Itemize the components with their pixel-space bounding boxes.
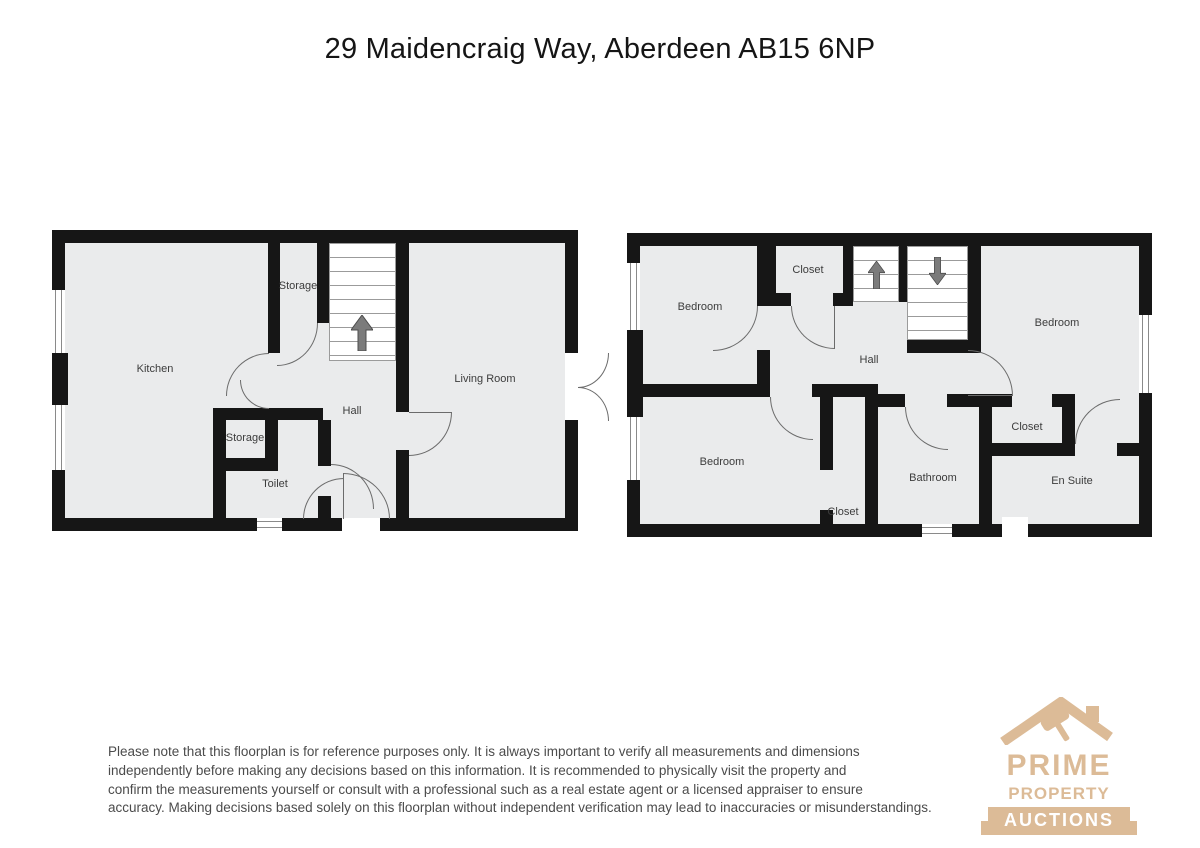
wall-segment: [865, 407, 878, 524]
stairs-up-arrow-icon: [351, 315, 373, 356]
stairs-down-arrow-icon: [929, 252, 946, 285]
logo-word-property: PROPERTY: [988, 785, 1130, 802]
logo-roof-icon: [988, 697, 1130, 750]
window: [257, 518, 282, 531]
wall-segment: [52, 518, 578, 531]
ground-floor-plan: Kitchen Storage Hall Storage Toilet Livi…: [52, 230, 578, 531]
window: [52, 405, 65, 470]
floorplan-page: 29 Maidencraig Way, Aberdeen AB15 6NP: [0, 0, 1200, 848]
prime-property-auctions-logo: PRIME PROPERTY AUCTIONS: [988, 697, 1130, 835]
room-label-closet: Closet: [827, 506, 858, 518]
front-door-opening: [342, 518, 380, 531]
wall-segment: [833, 293, 848, 306]
wall-segment: [1062, 407, 1075, 443]
french-door-arc: [578, 353, 609, 388]
disclaimer-line: independently before making any decision…: [108, 762, 953, 781]
stairs-up-arrow-icon: [868, 261, 885, 294]
window: [1139, 315, 1152, 393]
wall-segment: [396, 243, 409, 412]
room-label-closet: Closet: [1011, 421, 1042, 433]
disclaimer-text: Please note that this floorplan is for r…: [108, 743, 953, 818]
room-label-kitchen: Kitchen: [137, 363, 174, 375]
wall-segment: [820, 397, 833, 470]
wall-segment: [979, 394, 992, 524]
window: [52, 290, 65, 353]
wall-segment: [318, 420, 331, 466]
wall-segment: [52, 353, 68, 405]
wall-segment: [865, 394, 905, 407]
disclaimer-line: accuracy. Making decisions based solely …: [108, 799, 953, 818]
disclaimer-line: confirm the measurements yourself or con…: [108, 781, 953, 800]
wall-segment: [627, 233, 1152, 246]
wall-segment: [396, 450, 409, 518]
room-label-toilet: Toilet: [262, 478, 288, 490]
wall-segment: [757, 293, 791, 306]
window: [627, 417, 640, 480]
wall-segment: [1117, 443, 1139, 456]
room-label-hall: Hall: [343, 405, 362, 417]
wall-segment: [52, 230, 578, 243]
wall-segment: [627, 330, 643, 417]
wall-segment: [213, 458, 278, 471]
wall-segment: [979, 443, 1075, 456]
logo-word-prime: PRIME: [988, 751, 1130, 781]
room-label-bedroom: Bedroom: [700, 456, 745, 468]
wall-segment: [1052, 394, 1075, 407]
room-label-bedroom: Bedroom: [678, 301, 723, 313]
wall-opening: [1002, 517, 1028, 537]
room-label-bedroom: Bedroom: [1035, 317, 1080, 329]
french-door-arc: [578, 387, 609, 421]
room-label-storage: Storage: [279, 280, 318, 292]
wall-segment: [627, 524, 1152, 537]
wall-segment: [213, 408, 323, 420]
room-label-en-suite: En Suite: [1051, 475, 1093, 487]
disclaimer-line: Please note that this floorplan is for r…: [108, 743, 953, 762]
wall-segment: [627, 384, 770, 397]
room-label-closet: Closet: [792, 264, 823, 276]
room-label-bathroom: Bathroom: [909, 472, 957, 484]
logo-word-auctions: AUCTIONS: [988, 807, 1130, 835]
room-label-storage: Storage: [226, 432, 265, 444]
window: [627, 263, 640, 330]
wall-segment: [317, 243, 329, 323]
window: [922, 524, 952, 537]
wall-segment: [968, 246, 981, 353]
first-floor-plan: Bedroom Closet Hall Bedroom Bedroom Clos…: [627, 233, 1152, 537]
patio-door-opening: [565, 353, 578, 420]
page-title: 29 Maidencraig Way, Aberdeen AB15 6NP: [0, 33, 1200, 66]
wall-segment: [899, 246, 907, 302]
room-label-living-room: Living Room: [454, 373, 515, 385]
room-label-hall: Hall: [860, 354, 879, 366]
